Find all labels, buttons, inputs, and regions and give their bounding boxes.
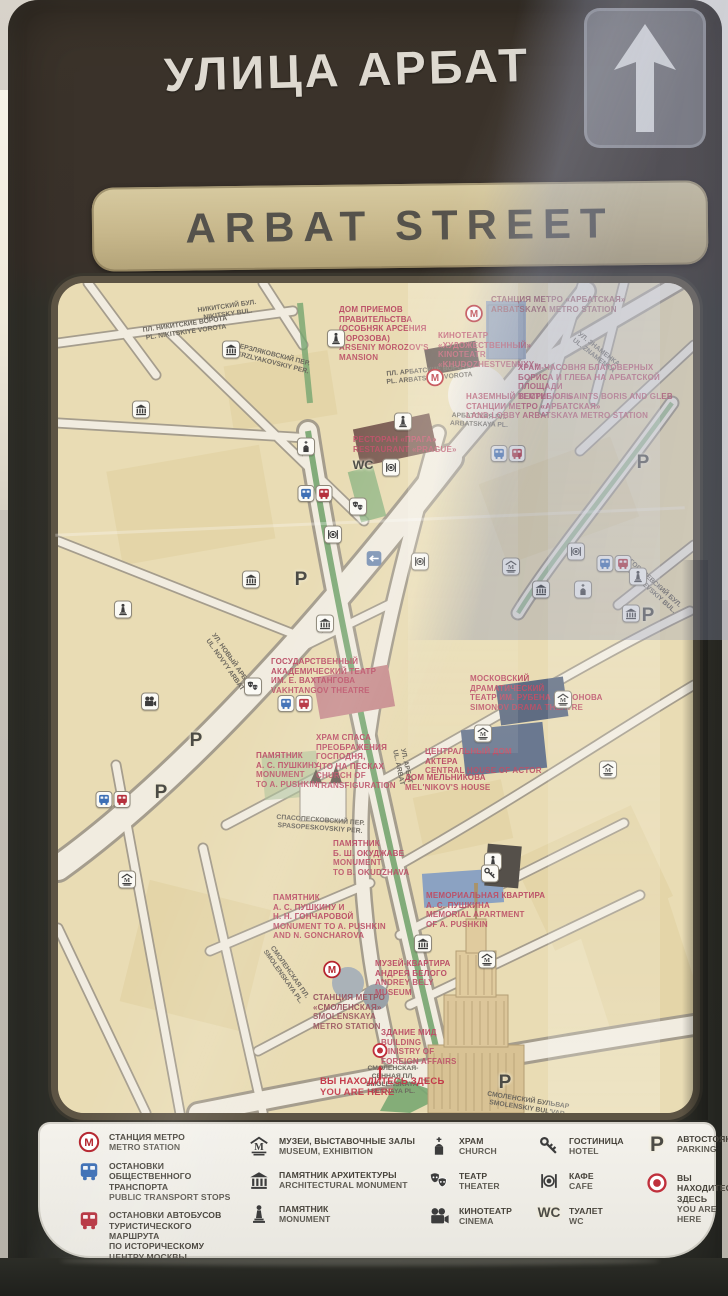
museum-icon: M (246, 1135, 272, 1157)
theater-icon (244, 678, 262, 699)
busred-icon (76, 1209, 102, 1231)
simonov-theatre-label-en: SIMONOV DRAMA THEATRE (470, 703, 603, 713)
vakhtangov-theatre-label: ГОСУДАРСТВЕННЫЙ АКАДЕМИЧЕСКИЙ ТЕАТР ИМ. … (271, 657, 376, 695)
svg-text:М: М (328, 965, 336, 976)
buspair-icon (278, 695, 313, 715)
transfiguration-church-label-en: CHURCH OF TRANSFIGURATION (316, 771, 396, 790)
wc-icon: WC (536, 1205, 562, 1220)
pushkin-apartment-label-ru: МЕМОРИАЛЬНАЯ КВАРТИРА А. С. ПУШКИНА (426, 891, 545, 910)
arch-icon (532, 581, 550, 602)
legend-theater: ТЕАТРTHEATER (426, 1171, 534, 1192)
melnikov-house-label-en: MEL'NIKOV'S HOUSE (405, 783, 490, 793)
house-of-actor-label: ЦЕНТРАЛЬНЫЙ ДОМ АКТЕРАCENTRAL HOUSE OF A… (425, 747, 542, 776)
legend-parking-ru: АВТОСТОЯНКА (677, 1134, 728, 1144)
legend-theater-label: ТЕАТРTHEATER (459, 1171, 500, 1192)
pushkin-goncharova-label: ПАМЯТНИК А. С. ПУШКИНУ И Н. Н. ГОНЧАРОВО… (273, 893, 386, 941)
pushkin-apartment-label: МЕМОРИАЛЬНАЯ КВАРТИРА А. С. ПУШКИНАMEMOR… (426, 891, 545, 929)
legend-monument-ru: ПАМЯТНИК (279, 1204, 330, 1214)
parking-icon: P (190, 730, 203, 752)
smolenskaya-metro-label: СТАНЦИЯ МЕТРО «СМОЛЕНСКАЯ»SMOLENSKAYA ME… (313, 993, 385, 1031)
legend-you-are-here: ВЫ НАХОДИТЕСЬ ЗДЕСЬYOU ARE HERE (644, 1173, 728, 1225)
direction-arrow-plaque (584, 8, 706, 148)
pushkin-goncharova-label-en: MONUMENT TO A. PUSHKIN AND N. GONCHAROVA (273, 922, 386, 941)
legend-cafe: КАФЕCAFE (536, 1171, 638, 1192)
pushkin-goncharova-label-ru: ПАМЯТНИК А. С. ПУШКИНУ И Н. Н. ГОНЧАРОВО… (273, 893, 386, 922)
frame-bottom-highlight (60, 1256, 660, 1266)
museum-icon: M (554, 691, 572, 712)
buspair-icon (298, 485, 333, 505)
legend-public-transport-label: ОСТАНОВКИ ОБЩЕСТВЕННОГО ТРАНСПОРТАPUBLIC… (109, 1161, 234, 1202)
mfa-building-label-en: BUILDING MINISTRY OF FOREIGN AFFAIRS (381, 1038, 457, 1067)
parking-icon: P (155, 782, 168, 804)
herearrow-icon (372, 1064, 389, 1086)
street-map: СТАНЦИЯ МЕТРО «АРБАТСКАЯ»ARBATSKAYA METR… (58, 283, 693, 1113)
transfiguration-church-label-ru: ХРАМ СПАСА ПРЕОБРАЖЕНИЯ ГОСПОДНЯ, ЧТО НА… (316, 733, 396, 771)
khudozhestvennyy-cinema-label-ru: КИНОТЕАТР «ХУДОЖЕСТВЕННЫЙ» (438, 331, 539, 350)
vakhtangov-theatre-label-ru: ГОСУДАРСТВЕННЫЙ АКАДЕМИЧЕСКИЙ ТЕАТР ИМ. … (271, 657, 376, 686)
mfa-building-label-ru: ЗДАНИЕ МИД (381, 1028, 457, 1038)
parking-icon: P (642, 605, 655, 627)
svg-text:М: М (84, 1137, 94, 1149)
parking-icon: P (499, 1072, 512, 1094)
arch-icon (622, 605, 640, 626)
buspair-icon (491, 445, 526, 465)
svg-text:M: M (254, 1142, 264, 1153)
theater-icon (349, 498, 367, 519)
bely-museum-label-ru: МУЗЕЙ-КВАРТИРА АНДРЕЯ БЕЛОГО (375, 959, 451, 978)
metro-icon: М (323, 960, 342, 984)
legend-you-are-here-label: ВЫ НАХОДИТЕСЬ ЗДЕСЬYOU ARE HERE (677, 1173, 728, 1225)
buspair-icon (96, 791, 131, 811)
legend-public-transport: ОСТАНОВКИ ОБЩЕСТВЕННОГО ТРАНСПОРТАPUBLIC… (76, 1161, 234, 1202)
bely-museum-label: МУЗЕЙ-КВАРТИРА АНДРЕЯ БЕЛОГОANDREY BELY … (375, 959, 451, 997)
simonov-theatre-label-ru: МОСКОВСКИЙ ДРАМАТИЧЕСКИЙ ТЕАТР ИМ. РУБЕН… (470, 674, 603, 703)
cinema-icon (141, 693, 159, 714)
legend-architectural-monument-en: ARCHITECTURAL MONUMENT (279, 1180, 408, 1190)
okudzhava-monument-label: ПАМЯТНИК Б. Ш. ОКУДЖАВЕMONUMENT TO B. OK… (333, 839, 409, 877)
legend-monument: ПАМЯТНИКMONUMENT (246, 1204, 416, 1225)
photo-of-street-sign: { "sign": { "title_ru": "УЛИЦА АРБАТ", "… (0, 0, 728, 1296)
legend-monument-label: ПАМЯТНИКMONUMENT (279, 1204, 330, 1225)
parking-icon: P (644, 1133, 670, 1157)
legend-wc-ru: ТУАЛЕТ (569, 1206, 603, 1216)
arbatskaya-metro-label: СТАНЦИЯ МЕТРО «АРБАТСКАЯ»ARBATSKAYA METR… (491, 295, 626, 314)
cafe-icon (382, 459, 400, 480)
bely-museum-label-en: ANDREY BELY MUSEUM (375, 978, 451, 997)
legend-museum-en: MUSEUM, EXHIBITION (279, 1146, 415, 1156)
smolenskaya-metro-label-en: SMOLENSKAYA METRO STATION (313, 1012, 385, 1031)
street-name-english: ARBAT STREET (185, 199, 615, 252)
legend: МСТАНЦИЯ МЕТРОMETRO STATIONОСТАНОВКИ ОБЩ… (38, 1122, 716, 1258)
legend-column-1: МСТАНЦИЯ МЕТРОMETRO STATIONОСТАНОВКИ ОБЩ… (76, 1132, 234, 1272)
key-icon (481, 865, 499, 886)
cafe-icon (567, 543, 585, 564)
cinema-icon (426, 1205, 452, 1227)
arch-icon (414, 935, 432, 956)
cafe-icon (536, 1170, 562, 1192)
up-arrow-icon (598, 18, 692, 138)
morozov-mansion-label: ДОМ ПРИЕМОВ ПРАВИТЕЛЬСТВА (ОСОБНЯК АРСЕН… (339, 305, 429, 363)
legend-church: ХРАМCHURCH (426, 1136, 534, 1157)
boris-gleb-temple-label-ru: ХРАМ-ЧАСОВНЯ БЛАГОВЕРНЫХ БОРИСА И ГЛЕБА … (518, 363, 693, 392)
legend-parking: PАВТОСТОЯНКАPARKING (644, 1134, 728, 1157)
legend-public-transport-ru: ОСТАНОВКИ ОБЩЕСТВЕННОГО ТРАНСПОРТА (109, 1161, 234, 1192)
house-of-actor-label-ru: ЦЕНТРАЛЬНЫЙ ДОМ АКТЕРА (425, 747, 542, 766)
legend-church-ru: ХРАМ (459, 1136, 497, 1146)
church-icon (574, 581, 592, 602)
legend-cafe-en: CAFE (569, 1181, 594, 1191)
key-icon (536, 1135, 562, 1157)
legend-wc-label: ТУАЛЕТWC (569, 1206, 603, 1227)
svg-text:М: М (470, 309, 478, 320)
sign-header: УЛИЦА АРБАТ ARBAT STREET (8, 0, 722, 285)
svg-text:М: М (431, 373, 439, 384)
cafe-icon (411, 553, 429, 574)
morozov-mansion-label-ru: ДОМ ПРИЕМОВ ПРАВИТЕЛЬСТВА (ОСОБНЯК АРСЕН… (339, 305, 429, 343)
theater-icon (426, 1170, 452, 1192)
monument-icon (327, 330, 345, 351)
legend-you-are-here-ru: ВЫ НАХОДИТЕСЬ ЗДЕСЬ (677, 1173, 728, 1204)
legend-column-4: ГОСТИНИЦАHOTELКАФЕCAFEWCТУАЛЕТWC (536, 1136, 638, 1227)
street-name-plaque: ARBAT STREET (92, 180, 709, 272)
mfa-building-label: ЗДАНИЕ МИДBUILDING MINISTRY OF FOREIGN A… (381, 1028, 457, 1066)
legend-church-en: CHURCH (459, 1146, 497, 1156)
church-icon (297, 438, 315, 459)
legend-architectural-monument-label: ПАМЯТНИК АРХИТЕКТУРЫARCHITECTURAL MONUME… (279, 1170, 408, 1191)
legend-monument-en: MONUMENT (279, 1214, 330, 1224)
here-icon (372, 1042, 389, 1064)
church-icon (426, 1135, 452, 1157)
pushkin-apartment-label-en: MEMORIAL APARTMENT OF A. PUSHKIN (426, 910, 545, 929)
museum-icon: M (599, 761, 617, 782)
monument-icon (629, 568, 647, 589)
arch-icon (242, 571, 260, 592)
legend-wc-en: WC (569, 1216, 603, 1226)
wc-icon: WC (353, 456, 374, 474)
legend-hotel-en: HOTEL (569, 1146, 624, 1156)
legend-sightseeing-bus-ru: ОСТАНОВКИ АВТОБУСОВ ТУРИСТИЧЕСКОГО МАРШР… (109, 1210, 234, 1262)
land-lobby-label: НАЗЕМНЫЙ ВЕСТИБЮЛЬ СТАНЦИИ МЕТРО «АРБАТС… (466, 392, 648, 421)
museum-icon: M (502, 558, 520, 579)
legend-architectural-monument: ПАМЯТНИК АРХИТЕКТУРЫARCHITECTURAL MONUME… (246, 1170, 416, 1191)
land-lobby-label-ru: НАЗЕМНЫЙ ВЕСТИБЮЛЬ СТАНЦИИ МЕТРО «АРБАТС… (466, 392, 648, 411)
street-name-russian: УЛИЦА АРБАТ (111, 35, 582, 103)
legend-wc: WCТУАЛЕТWC (536, 1206, 638, 1227)
land-lobby-label-en: LAND LOBBY ARBATSKAYA METRO STATION (466, 411, 648, 421)
melnikov-house-label: ДОМ МЕЛЬНИКОВАMEL'NIKOV'S HOUSE (405, 773, 490, 792)
museum-icon: M (118, 871, 136, 892)
legend-metro: МСТАНЦИЯ МЕТРОMETRO STATION (76, 1132, 234, 1153)
arbat-street-sign: УЛИЦА АРБАТ ARBAT STREET (8, 0, 722, 1296)
legend-theater-en: THEATER (459, 1181, 500, 1191)
legend-parking-label: АВТОСТОЯНКАPARKING (677, 1134, 728, 1155)
restaurant-prague-label-ru: РЕСТОРАН «ПРАГА» (353, 435, 457, 445)
monument-icon (114, 601, 132, 622)
pushkin-monument-label: ПАМЯТНИК А. С. ПУШКИНУMONUMENT TO A. PUS… (256, 751, 319, 789)
legend-hotel-label: ГОСТИНИЦАHOTEL (569, 1136, 624, 1157)
legend-cafe-label: КАФЕCAFE (569, 1171, 594, 1192)
parking-icon: P (637, 452, 650, 474)
buspair-icon (597, 555, 632, 575)
okudzhava-monument-label-ru: ПАМЯТНИК Б. Ш. ОКУДЖАВЕ (333, 839, 409, 858)
arch-icon (316, 615, 334, 636)
legend-you-are-here-en: YOU ARE HERE (677, 1204, 728, 1225)
monument-icon (246, 1203, 272, 1225)
melnikov-house-label-ru: ДОМ МЕЛЬНИКОВА (405, 773, 490, 783)
legend-cinema-en: CINEMA (459, 1216, 512, 1226)
pushkin-monument-label-ru: ПАМЯТНИК А. С. ПУШКИНУ (256, 751, 319, 770)
legend-metro-ru: СТАНЦИЯ МЕТРО (109, 1132, 185, 1142)
arch-icon (222, 341, 240, 362)
arch-icon (132, 401, 150, 422)
legend-theater-ru: ТЕАТР (459, 1171, 500, 1181)
busblue-icon (76, 1160, 102, 1182)
smolenskaya-metro-label-ru: СТАНЦИЯ МЕТРО «СМОЛЕНСКАЯ» (313, 993, 385, 1012)
parking-icon: P (295, 569, 308, 591)
arbatskaya-metro-label-ru: СТАНЦИЯ МЕТРО «АРБАТСКАЯ» (491, 295, 626, 305)
frame-shadow-right (682, 560, 708, 1120)
legend-museum: MМУЗЕИ, ВЫСТАВОЧНЫЕ ЗАЛЫMUSEUM, EXHIBITI… (246, 1136, 416, 1157)
legend-metro-en: METRO STATION (109, 1142, 185, 1152)
cafe-icon (324, 526, 342, 547)
restaurant-prague-label-en: RESTAURANT «PRAGUE» (353, 445, 457, 455)
legend-parking-en: PARKING (677, 1144, 728, 1154)
metro-icon: М (76, 1131, 102, 1153)
legend-cafe-ru: КАФЕ (569, 1171, 594, 1181)
pushkin-monument-label-en: MONUMENT TO A. PUSHKIN (256, 770, 319, 789)
legend-museum-ru: МУЗЕИ, ВЫСТАВОЧНЫЕ ЗАЛЫ (279, 1136, 415, 1146)
transfiguration-church-label: ХРАМ СПАСА ПРЕОБРАЖЕНИЯ ГОСПОДНЯ, ЧТО НА… (316, 733, 396, 791)
legend-museum-label: МУЗЕИ, ВЫСТАВОЧНЫЕ ЗАЛЫMUSEUM, EXHIBITIO… (279, 1136, 415, 1157)
legend-hotel: ГОСТИНИЦАHOTEL (536, 1136, 638, 1157)
turnarrow-icon (366, 551, 382, 572)
legend-architectural-monument-ru: ПАМЯТНИК АРХИТЕКТУРЫ (279, 1170, 408, 1180)
metro-icon: М (465, 304, 484, 328)
legend-metro-label: СТАНЦИЯ МЕТРОMETRO STATION (109, 1132, 185, 1153)
arbatskaya-metro-label-en: ARBATSKAYA METRO STATION (491, 305, 626, 315)
legend-cinema-label: КИНОТЕАТРCINEMA (459, 1206, 512, 1227)
legend-hotel-ru: ГОСТИНИЦА (569, 1136, 624, 1146)
legend-cinema-ru: КИНОТЕАТР (459, 1206, 512, 1216)
monument-icon (394, 413, 412, 434)
restaurant-prague-label: РЕСТОРАН «ПРАГА»RESTAURANT «PRAGUE» (353, 435, 457, 454)
morozov-mansion-label-en: ARSENIY MOROZOV'S MANSION (339, 343, 429, 362)
museum-icon: M (478, 951, 496, 972)
here-icon (644, 1172, 670, 1194)
legend-column-5: PАВТОСТОЯНКАPARKINGВЫ НАХОДИТЕСЬ ЗДЕСЬYO… (644, 1134, 728, 1225)
simonov-theatre-label: МОСКОВСКИЙ ДРАМАТИЧЕСКИЙ ТЕАТР ИМ. РУБЕН… (470, 674, 603, 712)
okudzhava-monument-label-en: MONUMENT TO B. OKUDZHAVA (333, 858, 409, 877)
museum-icon: M (474, 725, 492, 746)
vakhtangov-theatre-label-en: VAKHTANGOV THEATRE (271, 686, 376, 696)
legend-church-label: ХРАМCHURCH (459, 1136, 497, 1157)
legend-column-2: MМУЗЕИ, ВЫСТАВОЧНЫЕ ЗАЛЫMUSEUM, EXHIBITI… (246, 1136, 416, 1225)
you-are-here-label-en: YOU ARE HERE (320, 1087, 444, 1098)
legend-column-3: ХРАМCHURCHТЕАТРTHEATERКИНОТЕАТРCINEMA (426, 1136, 534, 1227)
legend-public-transport-en: PUBLIC TRANSPORT STOPS (109, 1192, 234, 1202)
legend-cinema: КИНОТЕАТРCINEMA (426, 1206, 534, 1227)
arch-icon (246, 1169, 272, 1191)
metro-icon: М (426, 368, 445, 392)
